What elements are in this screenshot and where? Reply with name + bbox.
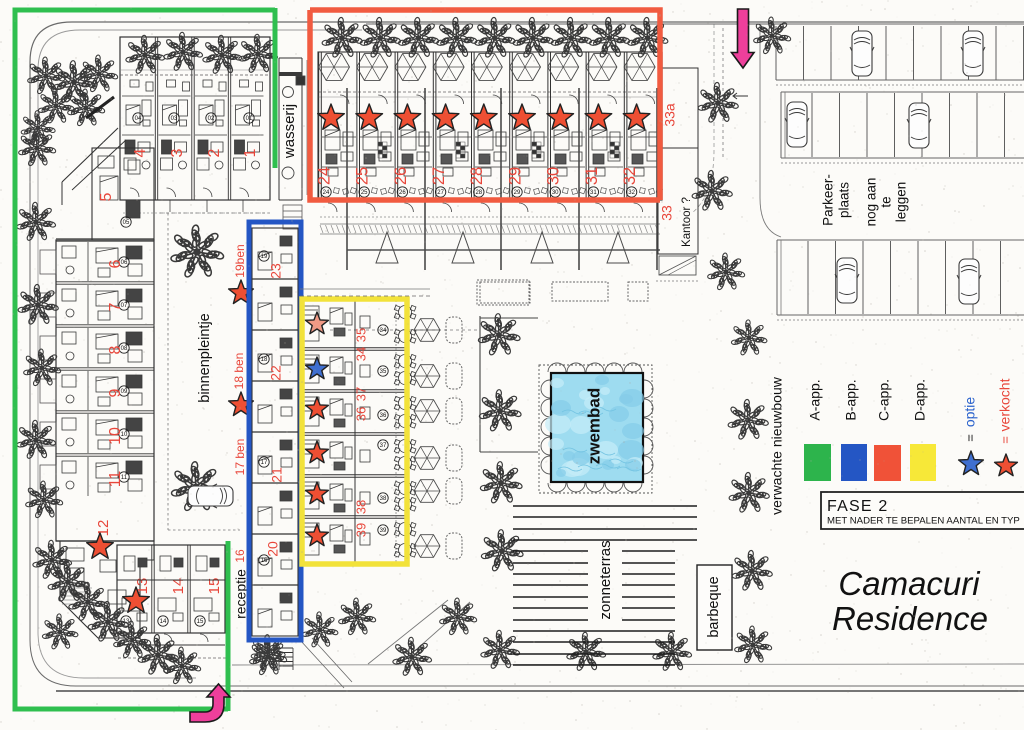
svg-text:barbeque: barbeque <box>706 576 722 637</box>
svg-text:18 ben: 18 ben <box>232 353 246 390</box>
svg-text:03: 03 <box>171 116 178 122</box>
svg-text:38: 38 <box>353 500 368 514</box>
svg-text:verwachte nieuwbouw: verwachte nieuwbouw <box>769 376 785 515</box>
svg-text:zwembad: zwembad <box>584 388 603 465</box>
svg-text:binnenpleintje: binnenpleintje <box>197 313 213 403</box>
svg-text:8: 8 <box>107 345 124 354</box>
svg-text:37: 37 <box>353 387 368 401</box>
svg-text:11: 11 <box>107 471 124 488</box>
svg-text:30: 30 <box>552 190 559 196</box>
svg-text:30: 30 <box>545 167 563 185</box>
svg-text:D-app.: D-app. <box>912 379 928 421</box>
svg-text:te: te <box>879 196 894 207</box>
svg-text:36: 36 <box>380 413 387 419</box>
svg-text:3: 3 <box>169 148 186 157</box>
svg-text:05: 05 <box>123 220 130 226</box>
svg-text:27: 27 <box>430 167 448 185</box>
svg-text:02: 02 <box>208 116 215 122</box>
svg-text:35: 35 <box>353 328 368 342</box>
svg-text:receptie: receptie <box>233 569 249 619</box>
svg-text:04: 04 <box>135 116 142 122</box>
svg-text:16: 16 <box>233 549 247 563</box>
svg-text:28: 28 <box>475 190 482 196</box>
svg-text:22: 22 <box>268 365 284 381</box>
svg-text:32: 32 <box>621 167 639 185</box>
svg-text:21: 21 <box>269 467 285 483</box>
svg-text:nog aan: nog aan <box>864 178 879 227</box>
svg-text:25: 25 <box>354 167 372 185</box>
svg-text:34: 34 <box>380 328 387 334</box>
svg-text:33a: 33a <box>662 103 678 127</box>
svg-text:33: 33 <box>659 205 675 221</box>
svg-text:Parkeer-: Parkeer- <box>821 174 836 226</box>
svg-text:=: = <box>962 434 977 442</box>
svg-text:=: = <box>997 436 1012 444</box>
svg-text:20: 20 <box>265 541 281 557</box>
svg-text:19: 19 <box>261 254 268 260</box>
svg-text:26: 26 <box>399 190 406 196</box>
svg-text:plaats: plaats <box>837 182 852 218</box>
svg-text:31: 31 <box>590 190 597 196</box>
svg-text:25: 25 <box>361 190 368 196</box>
svg-text:leggen: leggen <box>894 182 909 223</box>
svg-text:39: 39 <box>380 528 387 534</box>
svg-text:16: 16 <box>261 558 268 564</box>
svg-text:MET NADER TE BEPALEN AANTAL EN: MET NADER TE BEPALEN AANTAL EN TYP <box>827 516 1020 527</box>
svg-text:15: 15 <box>197 619 204 625</box>
svg-text:37: 37 <box>380 443 387 449</box>
svg-text:A-app.: A-app. <box>807 379 823 420</box>
svg-text:29: 29 <box>514 190 521 196</box>
svg-text:27: 27 <box>437 190 444 196</box>
svg-text:17 ben: 17 ben <box>233 439 247 476</box>
svg-text:5: 5 <box>98 192 115 201</box>
svg-text:28: 28 <box>468 167 486 185</box>
svg-text:24: 24 <box>323 190 330 196</box>
svg-text:35: 35 <box>380 369 387 375</box>
svg-text:1: 1 <box>242 148 259 157</box>
svg-text:10: 10 <box>107 427 124 445</box>
svg-text:6: 6 <box>107 259 124 268</box>
svg-text:31: 31 <box>583 167 601 185</box>
svg-text:17: 17 <box>261 460 268 466</box>
svg-text:18: 18 <box>261 357 268 363</box>
svg-text:32: 32 <box>628 190 635 196</box>
svg-text:01: 01 <box>246 116 253 122</box>
svg-text:23: 23 <box>268 263 284 279</box>
svg-text:B-app.: B-app. <box>843 379 859 420</box>
svg-text:optie: optie <box>962 397 978 428</box>
svg-text:29: 29 <box>506 167 524 185</box>
svg-text:26: 26 <box>392 167 410 185</box>
svg-text:39: 39 <box>353 523 368 537</box>
svg-text:verkocht: verkocht <box>997 378 1013 431</box>
svg-text:14: 14 <box>160 619 167 625</box>
svg-text:FASE 2: FASE 2 <box>827 498 888 515</box>
svg-text:Camacuri: Camacuri <box>838 565 981 602</box>
svg-text:12: 12 <box>95 520 112 537</box>
svg-text:Residence: Residence <box>832 600 988 637</box>
svg-text:zonneterras: zonneterras <box>597 540 614 619</box>
svg-text:2: 2 <box>206 148 223 157</box>
svg-text:C-app.: C-app. <box>876 379 892 421</box>
svg-text:24: 24 <box>315 167 333 185</box>
svg-text:19ben: 19ben <box>233 244 247 277</box>
svg-text:36: 36 <box>353 407 368 421</box>
svg-text:wasserij: wasserij <box>281 104 298 159</box>
svg-text:34: 34 <box>353 347 368 361</box>
svg-text:Kantoor ?: Kantoor ? <box>681 197 693 247</box>
svg-text:9: 9 <box>107 388 124 397</box>
svg-text:38: 38 <box>380 496 387 502</box>
svg-text:4: 4 <box>132 148 149 157</box>
svg-text:7: 7 <box>107 302 124 311</box>
